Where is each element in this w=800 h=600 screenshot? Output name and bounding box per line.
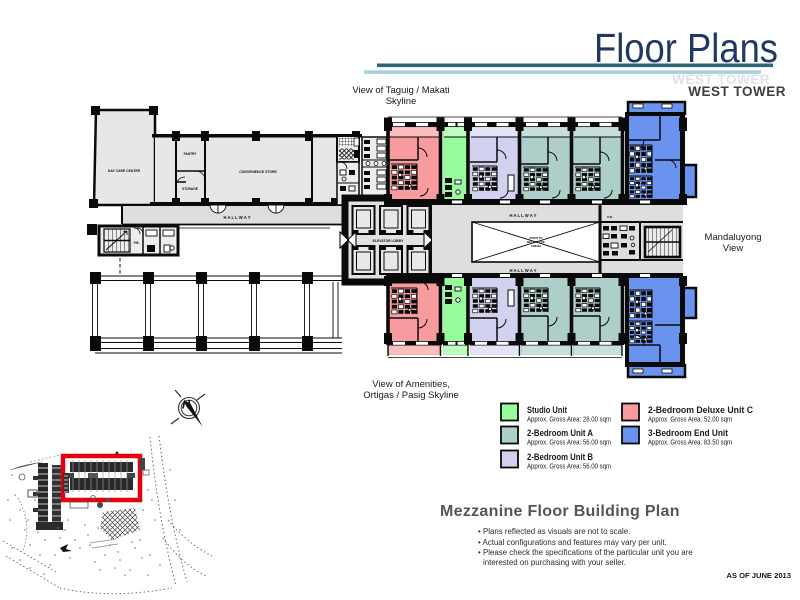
svg-text:2-Bedroom Unit B: 2-Bedroom Unit B (527, 452, 593, 463)
svg-text:Studio Unit: Studio Unit (527, 405, 568, 416)
svg-text:• Please check the specificati: • Please check the specifications of the… (478, 548, 693, 557)
svg-text:Mandaluyong: Mandaluyong (704, 232, 761, 243)
svg-text:STORAGE: STORAGE (182, 187, 198, 191)
svg-text:• Actual configurations and fe: • Actual configurations and features may… (478, 538, 667, 547)
svg-text:WEST TOWER: WEST TOWER (688, 84, 786, 99)
svg-text:H A L L W A Y: H A L L W A Y (223, 215, 250, 220)
svg-text:H A L L W A Y: H A L L W A Y (509, 268, 536, 273)
svg-text:CONVENIENCE STORE: CONVENIENCE STORE (239, 170, 277, 174)
svg-text:Approx. Gross Area: 56.00 sqm: Approx. Gross Area: 56.00 sqm (527, 464, 611, 471)
svg-text:Approx. Gross Area: 28.00 sqm: Approx. Gross Area: 28.00 sqm (527, 417, 611, 424)
svg-text:ELEVATOR LOBBY: ELEVATOR LOBBY (373, 239, 404, 243)
svg-text:Approx. Gross Area: 56.00 sqm: Approx. Gross Area: 56.00 sqm (527, 440, 611, 447)
svg-text:PANTRY: PANTRY (184, 152, 198, 156)
svg-text:P.B.: P.B. (134, 241, 140, 245)
svg-text:DAY CARE CENTER: DAY CARE CENTER (108, 169, 141, 173)
svg-text:interested on purchasing with: interested on purchasing with your selle… (483, 558, 626, 567)
svg-text:Mezzanine Floor Building Plan: Mezzanine Floor Building Plan (440, 503, 680, 520)
svg-text:Ortigas / Pasig Skyline: Ortigas / Pasig Skyline (363, 390, 459, 401)
svg-text:H A L L W A Y: H A L L W A Y (509, 213, 536, 218)
svg-text:View: View (723, 243, 744, 254)
svg-text:2-Bedroom Unit A: 2-Bedroom Unit A (527, 428, 593, 439)
svg-text:Skyline: Skyline (386, 96, 417, 107)
svg-text:Approx. Gross Area: 52.00 sqm: Approx. Gross Area: 52.00 sqm (648, 417, 732, 424)
svg-text:View of Taguig / Makati: View of Taguig / Makati (352, 85, 449, 96)
svg-text:• Plans reflected as visuals a: • Plans reflected as visuals are not to … (478, 527, 630, 536)
svg-text:ARENA: ARENA (531, 244, 543, 248)
svg-text:AS OF JUNE 2013: AS OF JUNE 2013 (726, 571, 791, 580)
svg-text:View of Amenities,: View of Amenities, (372, 379, 449, 390)
svg-text:Approx. Gross Area: 83.50 sqm: Approx. Gross Area: 83.50 sqm (648, 440, 732, 447)
svg-text:3-Bedroom End Unit: 3-Bedroom End Unit (648, 428, 729, 439)
svg-text:2-Bedroom Deluxe Unit C: 2-Bedroom Deluxe Unit C (648, 405, 753, 416)
svg-text:P.B.: P.B. (607, 215, 613, 219)
